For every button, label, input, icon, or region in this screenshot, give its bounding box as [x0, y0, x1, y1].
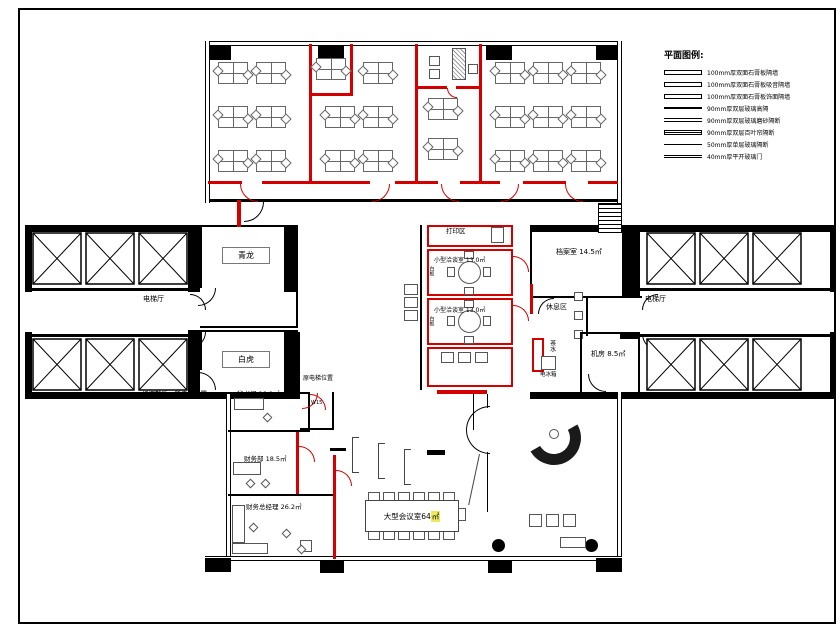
column	[205, 558, 231, 572]
wall-segment	[622, 225, 640, 298]
desk-cluster	[363, 150, 393, 172]
legend-item-label: 100mm厚双面石膏板饰面隔墙	[707, 92, 790, 101]
elevator-shaft	[646, 232, 696, 285]
legend-item-label: 100mm厚双面石膏板隔墙	[707, 68, 778, 77]
chair	[483, 267, 491, 277]
new-partition-wall	[208, 181, 242, 184]
desk-cluster	[218, 62, 248, 84]
label-finance-director: 财务总经理 26.2㎡	[246, 504, 302, 511]
label-secretary-room: 秘书间 10.9㎡	[237, 391, 280, 398]
chair	[443, 531, 455, 540]
area-highlight: ㎡	[431, 511, 441, 522]
seat	[574, 311, 583, 320]
structural-column-dot	[492, 539, 505, 552]
chair	[483, 316, 491, 326]
desk	[234, 398, 264, 410]
cabinet	[404, 284, 418, 295]
exterior-wall	[617, 392, 622, 556]
elevator-shaft	[138, 232, 188, 285]
desk-cluster	[571, 106, 601, 128]
wall-segment	[640, 392, 836, 399]
column	[486, 46, 512, 60]
elevator-shaft	[752, 232, 802, 285]
chair	[458, 352, 471, 363]
wall-segment	[487, 452, 488, 512]
wall-type-sample	[664, 118, 702, 122]
label-meeting-room-1: 小型洽谈室 13.0㎡	[434, 258, 485, 265]
desk	[232, 505, 245, 543]
wall-segment	[200, 326, 298, 328]
wall-segment	[586, 296, 588, 336]
elevator-shaft	[32, 338, 82, 391]
floor-plan-canvas: 平面图例: 100mm厚双面石膏板隔墙 100mm厚双面石膏板吸音隔墙 100m…	[0, 0, 840, 631]
column	[320, 560, 344, 573]
chair	[398, 531, 410, 540]
chair	[475, 352, 488, 363]
legend-item-label: 90mm厚双层玻璃磨砂隔断	[707, 116, 780, 125]
label-machine-room: 机房 8.5㎡	[591, 351, 625, 359]
wall-segment	[830, 225, 836, 292]
desk-cluster	[428, 138, 458, 160]
label-tea-point: 茶水	[548, 340, 555, 352]
note-new-elevator-position: 经调整后，新电梯位置	[142, 391, 207, 398]
legend-row: 40mm厚平开玻璃门	[664, 150, 832, 162]
desk	[232, 543, 268, 554]
equipment	[468, 64, 478, 74]
cabinet	[404, 310, 418, 321]
wall-segment	[25, 332, 32, 399]
new-partition-wall	[479, 44, 482, 182]
new-partition-wall	[437, 390, 487, 394]
new-partition-wall	[523, 181, 566, 184]
stool	[549, 429, 559, 439]
column	[488, 560, 512, 573]
wall-segment	[427, 450, 445, 455]
label-fridge: 电冰箱	[540, 372, 557, 378]
desk-cluster	[363, 62, 393, 84]
desk-cluster	[325, 106, 355, 128]
wall-segment	[200, 225, 202, 288]
column	[596, 558, 622, 572]
desk-cluster	[533, 62, 563, 84]
wall-type-sample	[664, 107, 702, 109]
elevator-shaft	[85, 232, 135, 285]
elevator-shaft	[699, 338, 749, 391]
chair	[447, 316, 455, 326]
legend-row: 90mm厚双层百叶帘隔断	[664, 126, 832, 138]
elevator-shaft	[752, 338, 802, 391]
legend-row: 100mm厚双面石膏板吸音隔墙	[664, 78, 832, 90]
desk-cluster	[495, 106, 525, 128]
desk	[233, 462, 261, 475]
wall-type-sample	[664, 144, 702, 145]
label-print-area: 打印区	[446, 228, 466, 235]
desk-cluster	[256, 106, 286, 128]
elevator-shaft	[646, 338, 696, 391]
wall-segment	[330, 448, 346, 451]
legend-row: 90mm厚双层玻璃高隔	[664, 102, 832, 114]
new-partition-wall	[262, 181, 370, 184]
baihu-text: 白虎	[238, 354, 254, 365]
wall-segment	[620, 332, 640, 339]
label-finance-room: 财务部 18.5㎡	[244, 456, 287, 463]
new-partition-wall	[588, 181, 618, 184]
desk-cluster	[571, 62, 601, 84]
sofa	[560, 537, 586, 548]
legend-row: 90mm厚双层玻璃磨砂隔断	[664, 114, 832, 126]
room-label-baihu: 白虎	[222, 351, 270, 368]
desk-cluster	[363, 106, 393, 128]
wall-segment	[580, 332, 582, 392]
cabinet	[404, 297, 418, 308]
label-conference-room: 大型会议室64	[384, 511, 431, 522]
new-partition-wall	[415, 44, 418, 182]
new-partition-wall	[456, 86, 482, 89]
label-whiteboard-2: 白板	[428, 316, 434, 326]
wall-type-sample	[664, 70, 702, 75]
desk-cluster	[316, 58, 346, 80]
label-rest-area: 休息区	[546, 304, 567, 312]
screen-divider	[352, 437, 359, 473]
wall-type-sample	[664, 130, 702, 135]
chair	[464, 287, 474, 295]
hatched-cabinet	[452, 48, 466, 80]
qinglong-text: 青龙	[238, 250, 254, 261]
elevator-shaft	[699, 232, 749, 285]
wall-segment	[200, 330, 298, 332]
fridge	[541, 356, 556, 370]
new-partition-wall	[530, 284, 533, 314]
wall-segment	[296, 330, 298, 392]
chair	[458, 508, 466, 521]
chair	[413, 531, 425, 540]
exterior-wall	[617, 41, 622, 203]
wall-segment	[25, 225, 188, 232]
desk-cluster	[428, 98, 458, 120]
chair	[441, 352, 454, 363]
label-elevator-hall-right: 电梯厅	[645, 296, 666, 304]
wall-segment	[640, 225, 836, 232]
note-old-elevator-position: 原电梯位置	[303, 376, 333, 383]
desk-cluster	[256, 150, 286, 172]
legend-item-label: 90mm厚双层玻璃高隔	[707, 104, 768, 113]
exterior-wall	[226, 394, 231, 556]
wall-segment	[188, 225, 200, 292]
wall-segment	[228, 494, 336, 496]
desk-cluster	[325, 150, 355, 172]
chair	[383, 531, 395, 540]
label-meeting-room-2: 小型洽谈室 13.0㎡	[434, 308, 485, 315]
wall-segment	[332, 392, 334, 430]
label-door-code: W15	[311, 401, 322, 407]
conference-table: 大型会议室64㎡	[365, 500, 459, 532]
wall-segment	[640, 288, 836, 291]
wall-segment	[205, 199, 622, 202]
desk-cluster	[218, 106, 248, 128]
elevator-shaft	[85, 338, 135, 391]
chair	[447, 267, 455, 277]
chair	[368, 531, 380, 540]
new-partition-wall	[296, 432, 299, 494]
legend-item-label: 90mm厚双层百叶帘隔断	[707, 128, 774, 137]
wall-segment	[284, 225, 298, 292]
elevator-shaft	[32, 232, 82, 285]
wall-segment	[25, 225, 32, 292]
new-partition-wall	[309, 93, 353, 96]
legend-item-label: 40mm厚平开玻璃门	[707, 152, 762, 161]
exterior-wall	[205, 556, 622, 561]
legend-item-label: 50mm厚单层玻璃隔断	[707, 140, 768, 149]
new-partition-wall	[237, 200, 241, 227]
side-table	[546, 514, 559, 527]
legend-row: 100mm厚双面石膏板饰面隔墙	[664, 90, 832, 102]
wall-segment	[25, 334, 188, 337]
legend-item-label: 100mm厚双面石膏板吸音隔墙	[707, 80, 790, 89]
desk-cluster	[256, 62, 286, 84]
copier	[429, 56, 440, 66]
new-partition-wall	[415, 86, 447, 89]
desk-cluster	[571, 150, 601, 172]
desk-cluster	[218, 150, 248, 172]
screen-divider	[378, 443, 385, 479]
desk-cluster	[533, 106, 563, 128]
wall-type-sample	[664, 155, 702, 158]
chair	[428, 531, 440, 540]
legend-row: 50mm厚单层玻璃隔断	[664, 138, 832, 150]
desk-cluster	[495, 150, 525, 172]
screen-divider	[404, 449, 411, 485]
wall-segment	[420, 225, 422, 390]
legend: 平面图例: 100mm厚双面石膏板隔墙 100mm厚双面石膏板吸音隔墙 100m…	[664, 48, 832, 162]
label-archive-room: 档案室 14.5㎡	[556, 249, 602, 257]
structural-column-dot	[585, 539, 598, 552]
label-whiteboard-1: 白板	[428, 266, 434, 276]
chair	[464, 336, 474, 344]
wall-segment	[830, 332, 836, 399]
label-elevator-hall-left: 电梯厅	[143, 296, 164, 304]
exterior-wall	[205, 41, 210, 203]
room-label-qinglong: 青龙	[222, 247, 270, 264]
wall-type-sample	[664, 94, 702, 99]
elevator-shaft	[138, 338, 188, 391]
wall-segment	[638, 334, 640, 392]
copier	[491, 227, 504, 243]
wall-type-sample	[664, 82, 702, 87]
wall-segment	[530, 392, 640, 399]
legend-row: 100mm厚双面石膏板隔墙	[664, 66, 832, 78]
wall-segment	[640, 334, 836, 337]
wall-segment	[25, 288, 188, 291]
side-table	[563, 514, 576, 527]
stairs	[598, 203, 622, 233]
side-table	[529, 514, 542, 527]
desk-cluster	[495, 62, 525, 84]
seat	[574, 292, 583, 301]
desk-cluster	[533, 150, 563, 172]
exterior-wall	[205, 41, 622, 46]
legend-title: 平面图例:	[664, 48, 832, 61]
copier	[429, 69, 440, 79]
